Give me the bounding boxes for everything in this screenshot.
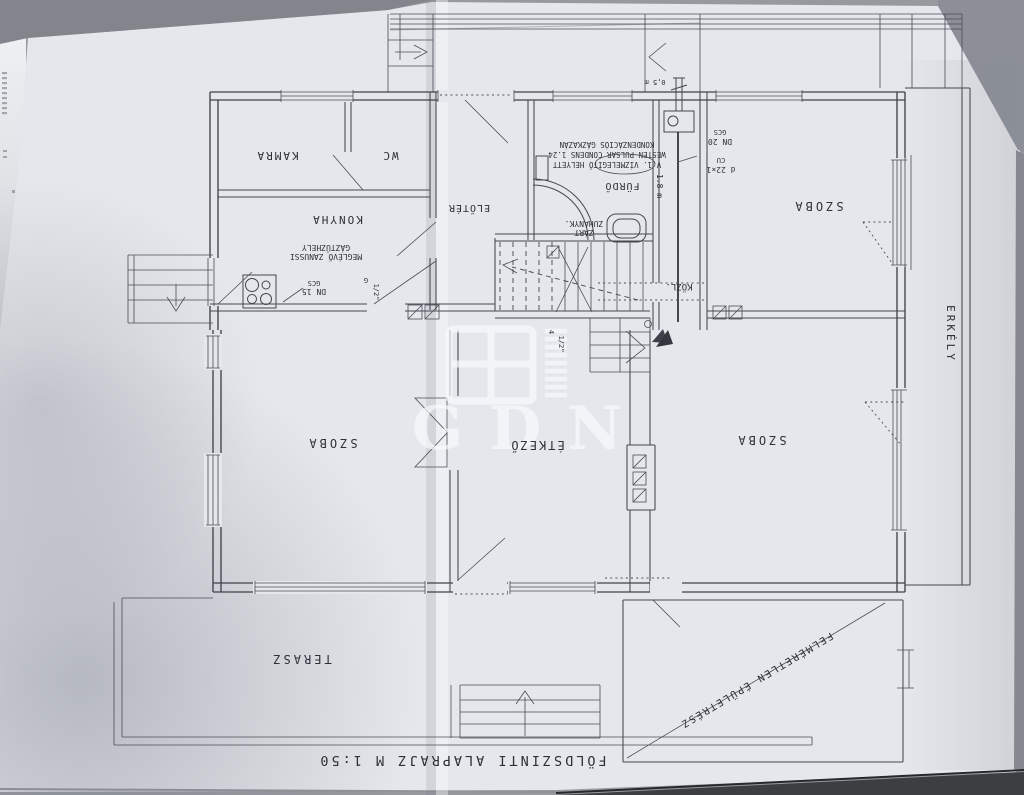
stove-annotation-line2: GÁZTŰZHELY <box>302 243 350 254</box>
dn20-label: DN 20 <box>708 137 732 146</box>
shadow-right <box>900 60 1018 770</box>
stove-annotation-line1: MEGLÉVŐ ZANUSSI <box>290 252 362 263</box>
dim-1-8m: 1.8 m <box>655 174 664 198</box>
four-label: 4 <box>547 330 555 334</box>
room-label-zuhany-line1: ZÁRT <box>574 228 593 239</box>
photographed-floor-plan: GDN KAMRA WC KONYHA ELŐTÉR FÜRDŐ ZÁRT ZU… <box>0 0 1024 795</box>
room-label-szoba-bottom: SZOBA <box>735 433 786 447</box>
half-inch-kitchen: 1/2" <box>372 284 380 301</box>
pipe-material-label: CU <box>717 156 725 164</box>
half-inch-stairs: 1/2" <box>557 336 565 353</box>
room-label-szoba-left: SZOBA <box>306 436 357 450</box>
room-label-eloter: ELŐTÉR <box>448 202 490 216</box>
room-label-kamra: KAMRA <box>255 149 298 162</box>
boiler-line1: V.1. VÍZMELEGÍTŐ HELYETT <box>552 160 661 169</box>
room-label-konyha: KONYHA <box>311 213 363 226</box>
dim-0-5m: 0,5 m <box>644 78 665 86</box>
room-label-szoba-top: SZOBA <box>792 199 843 213</box>
room-label-erkely: ERKÉLY <box>944 305 957 363</box>
dn15-label: DN 15 <box>302 287 326 296</box>
drawing-title: FÖLDSZINTI ALAPRAJZ M 1:50 <box>317 752 606 770</box>
room-label-wc: WC <box>381 149 398 162</box>
floor-plan-photo: GDN KAMRA WC KONYHA ELŐTÉR FÜRDŐ ZÁRT ZU… <box>0 0 1024 795</box>
room-label-terasz: TERASZ <box>270 652 331 666</box>
watermark-text: GDN <box>412 394 648 464</box>
gcs-label-2: GCS <box>714 128 727 136</box>
boiler-annotation: V.1. VÍZMELEGÍTŐ HELYETT WESTEN PULSAR C… <box>548 140 666 169</box>
room-label-kozl: KÖZL. <box>665 281 692 292</box>
room-label-etkezo: ÉTKEZŐ <box>509 438 564 453</box>
boiler-line3: KONDENZÁCIÓS GÁZKAZÁN <box>560 140 655 149</box>
room-label-furdo: FÜRDŐ <box>604 180 639 194</box>
pipe-dimension-label: d 22×1 <box>706 165 735 174</box>
gas-g-label: G <box>364 276 368 284</box>
gcs-label-1: GCS <box>308 279 321 287</box>
room-label-zuhany-line2: ZUHANYK. <box>565 219 604 228</box>
